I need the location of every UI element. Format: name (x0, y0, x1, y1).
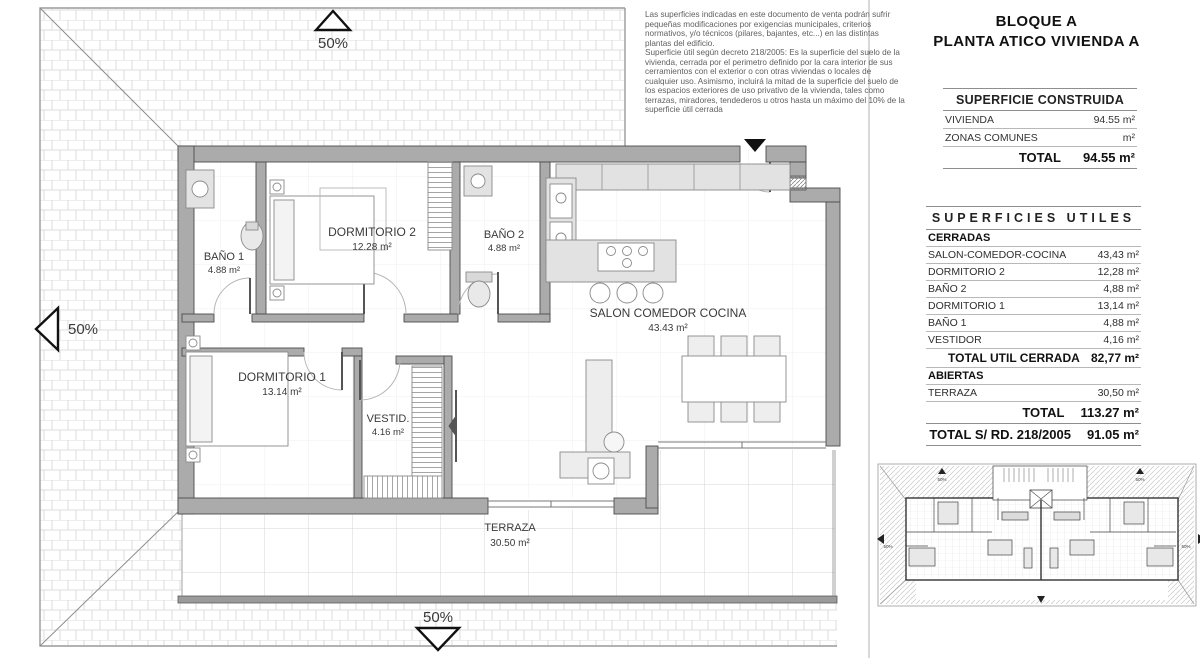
room-label: BAÑO 1 (204, 250, 244, 263)
stool (617, 283, 637, 303)
row-label: VESTIDOR (928, 334, 982, 346)
room-label: SALON COMEDOR COCINA (590, 306, 747, 320)
svg-text:50%: 50% (1135, 477, 1144, 482)
bedroom2-furniture (270, 180, 386, 300)
built-area-table: SUPERFICIE CONSTRUIDA VIVIENDA94.55 m²ZO… (943, 88, 1137, 169)
row-label: TOTAL S/ RD. 218/2005 (929, 427, 1071, 442)
row-value: m² (1123, 132, 1135, 144)
block-title: BLOQUE A (873, 12, 1200, 32)
row-value: 12,28 m² (1098, 266, 1139, 278)
built-area-row: ZONAS COMUNESm² (943, 129, 1137, 147)
row-value: 91.05 m² (1087, 427, 1139, 442)
svg-text:50%: 50% (1181, 544, 1190, 549)
built-area-total-row: TOTAL 94.55 m² (943, 147, 1137, 169)
built-area-row: VIVIENDA94.55 m² (943, 111, 1137, 129)
disclaimer-line: vivienda, cerrada por el perimetro defin… (645, 58, 880, 68)
row-value: 4,88 m² (1103, 317, 1139, 329)
disclaimer-line: normativos, y/o técnicos (pilares, bajan… (645, 29, 880, 39)
usable-area-row: BAÑO 24,88 m² (926, 281, 1141, 298)
installation-shaft (790, 176, 806, 190)
row-value: 43,43 m² (1098, 249, 1139, 261)
washing-machine (588, 458, 614, 484)
plan-sheet: BAÑO 1 4.88 m² DORMITORIO 2 12.28 m² BAÑ… (0, 0, 1200, 658)
svg-text:50%: 50% (937, 477, 946, 482)
usable-area-row: TOTAL UTIL CERRADA82,77 m² (926, 349, 1141, 368)
room-area: 43.43 m² (648, 323, 688, 334)
disclaimer-line: superficie útil cerrada (645, 105, 880, 115)
usable-areas-table-title: SUPERFICIES UTILES (926, 206, 1141, 230)
usable-area-row: BAÑO 14,88 m² (926, 315, 1141, 332)
floor-title: PLANTA ATICO VIVIENDA A (873, 32, 1200, 52)
wardrobe-dorm2 (428, 162, 452, 250)
row-value: 82,77 m² (1091, 351, 1139, 365)
row-label: DORMITORIO 1 (928, 300, 1005, 312)
row-label: ZONAS COMUNES (945, 132, 1038, 144)
dining-set (682, 336, 786, 422)
legal-disclaimer: Las superficies indicadas en este docume… (645, 10, 880, 115)
slope-label-top: 50% (318, 35, 348, 52)
disclaimer-line: pequeñas modificaciones por exigencias m… (645, 20, 880, 30)
usable-area-row: DORMITORIO 113,14 m² (926, 298, 1141, 315)
sheet-title: BLOQUE A PLANTA ATICO VIVIENDA A (873, 12, 1200, 52)
usable-area-row: TOTAL S/ RD. 218/200591.05 m² (926, 424, 1141, 446)
usable-area-row: VESTIDOR4,16 m² (926, 332, 1141, 349)
row-value: 4,16 m² (1103, 334, 1139, 346)
disclaimer-line: plantas del edificio. (645, 39, 880, 49)
room-area: 30.50 m² (490, 538, 530, 549)
total-value: 94.55 m² (1083, 150, 1135, 165)
row-label: TERRAZA (928, 387, 977, 399)
room-area: 4.16 m² (372, 427, 404, 438)
room-area: 13.14 m² (262, 387, 302, 398)
disclaimer-line: cualquier uso. Asimismo, incluirá la mit… (645, 77, 880, 87)
terrace-edge-wall (178, 596, 837, 603)
row-label: ABIERTAS (928, 370, 983, 382)
room-area: 12.28 m² (352, 242, 392, 253)
built-area-table-title: SUPERFICIE CONSTRUIDA (943, 88, 1137, 111)
usable-area-row: SALON-COMEDOR-COCINA43,43 m² (926, 247, 1141, 264)
usable-area-row: TOTAL113.27 m² (926, 402, 1141, 424)
row-label: CERRADAS (928, 232, 990, 244)
svg-text:50%: 50% (883, 544, 892, 549)
stool (590, 283, 610, 303)
disclaimer-line: terrazas, miradores, tendederos u otros … (645, 96, 880, 106)
room-label: TERRAZA (484, 522, 536, 534)
row-value: 13,14 m² (1098, 300, 1139, 312)
room-area: 4.88 m² (208, 265, 240, 276)
row-label: TOTAL UTIL CERRADA (948, 351, 1080, 365)
row-label: TOTAL (1022, 405, 1064, 420)
row-value: 113.27 m² (1080, 405, 1139, 420)
room-label: VESTID. (367, 413, 410, 425)
row-value: 30,50 m² (1098, 387, 1139, 399)
disclaimer-line: Las superficies indicadas en este docume… (645, 10, 880, 20)
room-label: DORMITORIO 2 (328, 225, 416, 239)
usable-area-row: ABIERTAS (926, 368, 1141, 385)
room-area: 4.88 m² (488, 243, 520, 254)
wardrobe-vestidor-bottom (364, 476, 442, 498)
row-label: DORMITORIO 2 (928, 266, 1005, 278)
row-value: 94.55 m² (1094, 114, 1135, 126)
usable-area-row: TERRAZA30,50 m² (926, 385, 1141, 402)
row-label: BAÑO 2 (928, 283, 967, 295)
room-label: BAÑO 2 (484, 228, 524, 241)
total-label: TOTAL (1019, 150, 1061, 165)
overview-inset: 50% 50% 50% 50% (877, 464, 1200, 606)
slope-label-bottom: 50% (423, 609, 453, 626)
disclaimer-line: Superficie útil según decreto 218/2005: … (645, 48, 880, 58)
disclaimer-line: los espacios exteriores de uso privativo… (645, 86, 880, 96)
row-value: 4,88 m² (1103, 283, 1139, 295)
usable-areas-table: SUPERFICIES UTILES CERRADASSALON-COMEDOR… (926, 206, 1141, 446)
stool (643, 283, 663, 303)
wardrobe-vestidor-right (412, 366, 442, 492)
usable-area-row: CERRADAS (926, 230, 1141, 247)
room-label: DORMITORIO 1 (238, 370, 326, 384)
bedroom1-furniture (186, 336, 288, 462)
disclaimer-line: cerramientos con el exterior o con otras… (645, 67, 880, 77)
usable-area-row: DORMITORIO 212,28 m² (926, 264, 1141, 281)
row-label: SALON-COMEDOR-COCINA (928, 249, 1066, 261)
row-label: BAÑO 1 (928, 317, 967, 329)
slope-label-left: 50% (68, 321, 98, 338)
row-label: VIVIENDA (945, 114, 994, 126)
